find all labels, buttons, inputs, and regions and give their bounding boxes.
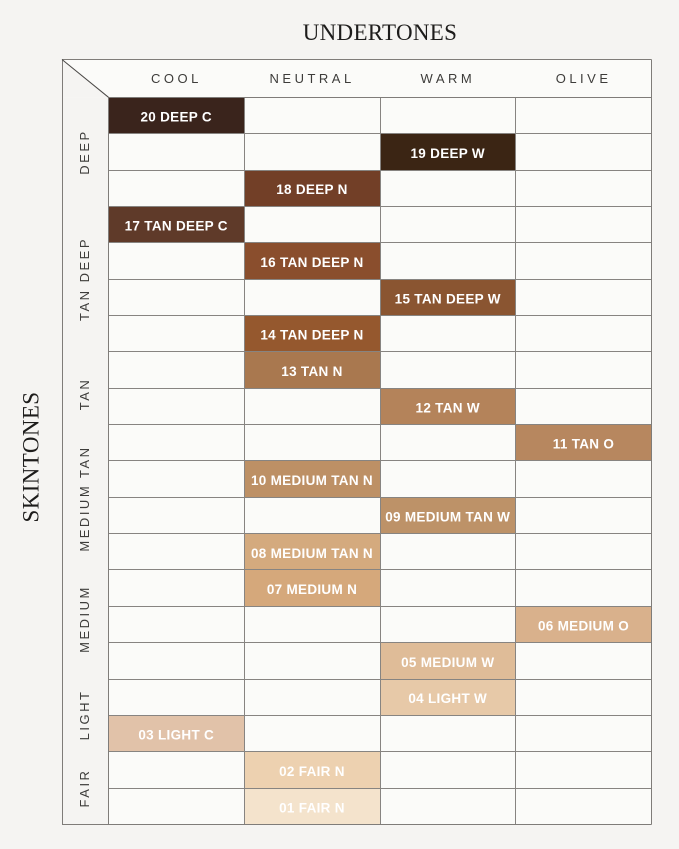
svg-text:UNDERTONES: UNDERTONES: [303, 20, 458, 45]
svg-text:16 TAN DEEP N: 16 TAN DEEP N: [260, 255, 363, 270]
svg-text:WARM: WARM: [421, 71, 476, 86]
svg-text:04 LIGHT W: 04 LIGHT W: [408, 691, 487, 706]
svg-text:02 FAIR N: 02 FAIR N: [279, 764, 345, 779]
svg-text:11 TAN O: 11 TAN O: [553, 437, 614, 452]
svg-text:MEDIUM TAN: MEDIUM TAN: [77, 445, 92, 551]
svg-text:TAN DEEP: TAN DEEP: [77, 237, 92, 321]
svg-text:10 MEDIUM TAN N: 10 MEDIUM TAN N: [251, 473, 373, 488]
svg-text:15 TAN DEEP W: 15 TAN DEEP W: [395, 291, 501, 306]
svg-text:05 MEDIUM W: 05 MEDIUM W: [401, 655, 494, 670]
svg-text:TAN: TAN: [77, 378, 92, 411]
svg-text:08 MEDIUM TAN N: 08 MEDIUM TAN N: [251, 546, 373, 561]
svg-text:SKINTONES: SKINTONES: [19, 392, 44, 523]
svg-text:LIGHT: LIGHT: [77, 690, 92, 741]
svg-text:14 TAN DEEP N: 14 TAN DEEP N: [260, 328, 363, 343]
svg-text:03 LIGHT C: 03 LIGHT C: [138, 728, 214, 743]
svg-text:OLIVE: OLIVE: [556, 71, 612, 86]
svg-text:FAIR: FAIR: [77, 769, 92, 808]
svg-text:01 FAIR N: 01 FAIR N: [279, 800, 345, 815]
svg-text:19 DEEP W: 19 DEEP W: [410, 146, 484, 161]
svg-text:18 DEEP N: 18 DEEP N: [276, 182, 348, 197]
svg-text:17 TAN DEEP C: 17 TAN DEEP C: [125, 219, 228, 234]
svg-text:DEEP: DEEP: [77, 129, 92, 174]
svg-text:06 MEDIUM O: 06 MEDIUM O: [538, 619, 629, 634]
svg-text:COOL: COOL: [151, 71, 202, 86]
svg-text:12 TAN W: 12 TAN W: [416, 400, 480, 415]
svg-text:NEUTRAL: NEUTRAL: [270, 71, 355, 86]
svg-text:20 DEEP C: 20 DEEP C: [140, 109, 212, 124]
svg-text:09 MEDIUM TAN W: 09 MEDIUM TAN W: [385, 509, 510, 524]
svg-text:MEDIUM: MEDIUM: [77, 585, 92, 653]
svg-text:07 MEDIUM N: 07 MEDIUM N: [267, 582, 357, 597]
svg-text:13 TAN N: 13 TAN N: [281, 364, 342, 379]
